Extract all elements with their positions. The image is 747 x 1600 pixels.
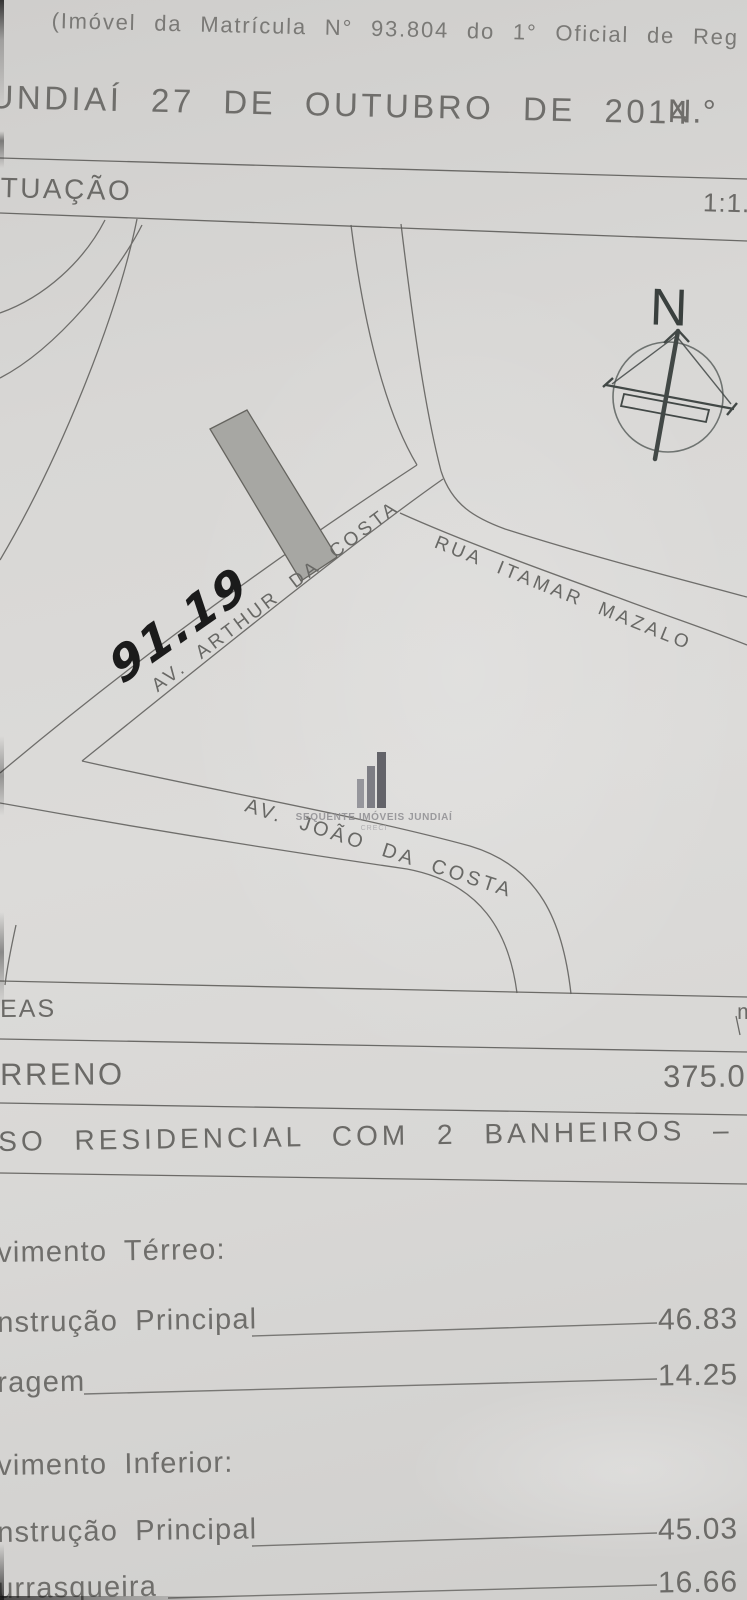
map-scale-value: 1:1.0 — [703, 187, 747, 220]
street-lines — [0, 219, 747, 994]
document-number-label: N.° — [667, 92, 717, 131]
site-plan-drawing — [0, 0, 747, 1600]
situacao-section-title: TUAÇÃO — [0, 172, 132, 207]
garagem-value: 14.25 — [658, 1358, 739, 1393]
garagem-label: ragem — [0, 1366, 86, 1400]
areas-section-title: EAS — [0, 995, 56, 1024]
terreno-row-value: 375.0 — [663, 1059, 746, 1095]
scanned-site-plan-document: (Imóvel da Matrícula N° 93.804 do 1° Ofi… — [0, 0, 747, 1600]
churrasqueira-value: 16.66 — [658, 1565, 739, 1600]
construcao-principal-terreo-label: nstrução Principal — [0, 1303, 258, 1340]
construcao-principal-inferior-label: nstrução Principal — [0, 1513, 258, 1550]
terreno-row-label: RRENO — [0, 1056, 125, 1093]
watermark-logo-bars — [357, 752, 386, 808]
scan-edge-shadow-bottom — [0, 1596, 240, 1600]
pavimento-inferior-title: vimento Inferior: — [0, 1447, 234, 1483]
construcao-principal-terreo-value: 46.83 — [658, 1302, 739, 1337]
compass-north-label: N — [649, 277, 689, 338]
areas-unit-label: m — [737, 999, 747, 1025]
north-compass — [603, 330, 737, 459]
watermark-brand-text: SEQUENTE IMÓVEIS JUNDIAÍ — [296, 812, 453, 823]
watermark-sub-text: CRECI — [361, 825, 388, 832]
construcao-principal-inferior-value: 45.03 — [658, 1512, 739, 1547]
scan-edge-shadow-left — [0, 0, 4, 1600]
pavimento-terreo-title: vimento Térreo: — [0, 1234, 226, 1270]
